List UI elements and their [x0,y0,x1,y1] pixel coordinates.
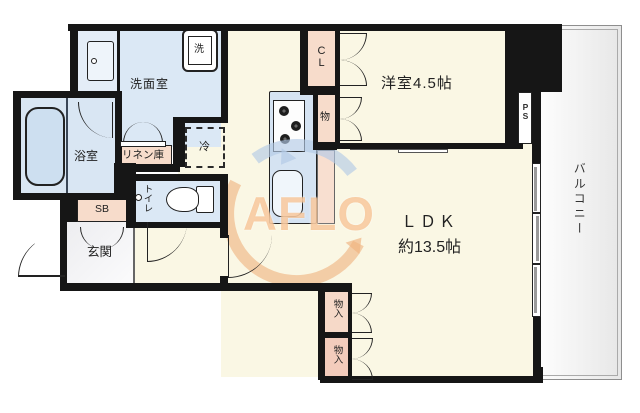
refrigerator-label: 冷 [199,141,210,153]
bath-divider [66,98,68,193]
bathroom-label: 浴室 [74,150,98,163]
small-storage-label: 物 [320,112,330,123]
pipe-space-label: PS [521,103,530,121]
floor-plan: AFLO [0,0,640,413]
closet-label: CL [316,46,327,70]
window-mullion [532,212,541,214]
sliding-door-panel [398,149,448,153]
toilet-label: トイレ [141,184,151,220]
storage2-label: 物入 [331,345,341,364]
entrance-door-arc [18,233,65,277]
linen-label: リネン庫 [122,150,164,162]
shoebox-label: SB [95,204,109,216]
vanity-drain [91,58,97,64]
toilet-bowl [166,187,199,212]
bathtub [25,107,65,186]
ldk-label: ＬＤＫ [401,214,458,232]
balcony-label: バルコニー [572,162,585,237]
balcony-window-pane [536,216,539,261]
balcony-window-pane [534,167,537,211]
watermark-text: AFLO [243,188,375,240]
storage1-label: 物入 [331,299,341,318]
burner-icon [279,106,289,116]
entrance-label: 玄関 [87,246,112,260]
burner-icon [291,121,301,131]
western-room-label: 洋室4.5帖 [381,76,453,93]
washroom-label: 洗面室 [130,78,169,91]
linen-threshold [120,141,166,147]
balcony-window-pane [534,267,537,313]
washer-label: 洗 [194,44,204,55]
ldk-size-label: 約13.5帖 [398,239,461,257]
entrance-step-line [133,224,135,283]
window-mullion [532,263,541,265]
